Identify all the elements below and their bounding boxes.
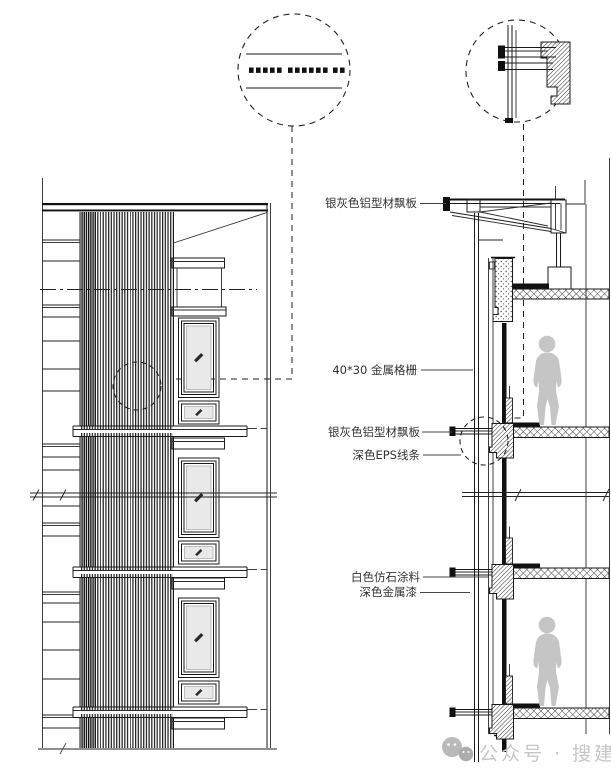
label-text: 银灰色铝型材飘板 [328,425,420,439]
louver-panel [80,212,174,748]
canopy [443,180,585,233]
label-aluminum-fin-board-mid: 银灰色铝型材飘板 [328,425,452,439]
watermark: 公众号 · 搜建筑 [442,737,611,765]
break-line [462,489,609,501]
label-dark-eps-trim: 深色EPS线条 [352,448,461,462]
window-unit [179,318,220,424]
facade-elevation [30,178,277,754]
floor-detail [450,423,610,459]
detail-circle-board-section [466,20,570,123]
label-text: 深色EPS线条 [352,448,420,462]
annotation-labels: 银灰色铝型材飘板 40*30 金属格栅 银灰色铝型材飘板 深色EPS线条 白色仿… [325,196,488,599]
label-dark-metal-paint: 深色金属漆 [360,585,471,599]
label-aluminum-fin-board-top: 银灰色铝型材飘板 [325,196,446,210]
floor-band [73,567,267,578]
human-figure [533,336,561,425]
label-text: 40*30 金属格栅 [332,363,417,377]
wechat-icon [442,737,473,761]
floor-detail [450,564,610,600]
detail-circle-grille-plan [238,14,350,126]
label-text: 白色仿石涂料 [351,570,420,584]
drawing-sheet: 银灰色铝型材飘板 40*30 金属格栅 银灰色铝型材飘板 深色EPS线条 白色仿… [0,0,611,775]
floor-band [73,426,267,437]
window-column-top [172,213,267,317]
roof-slab [510,284,609,300]
floor-detail [450,704,610,740]
label-text: 银灰色铝型材飘板 [325,196,417,210]
human-figure [533,617,561,706]
siding-lines [42,240,80,728]
watermark-text: 公众号 · 搜建筑 [479,743,611,765]
label-metal-grille: 40*30 金属格栅 [332,363,473,377]
wall-section [443,158,610,762]
window-head-band [172,718,225,729]
label-text: 深色金属漆 [360,585,418,599]
architectural-drawing: 银灰色铝型材飘板 40*30 金属格栅 银灰色铝型材飘板 深色EPS线条 白色仿… [0,0,611,775]
canopy-hanger [548,233,571,289]
window-unit [172,438,225,564]
floor-band [73,707,267,718]
window-unit [172,578,225,704]
